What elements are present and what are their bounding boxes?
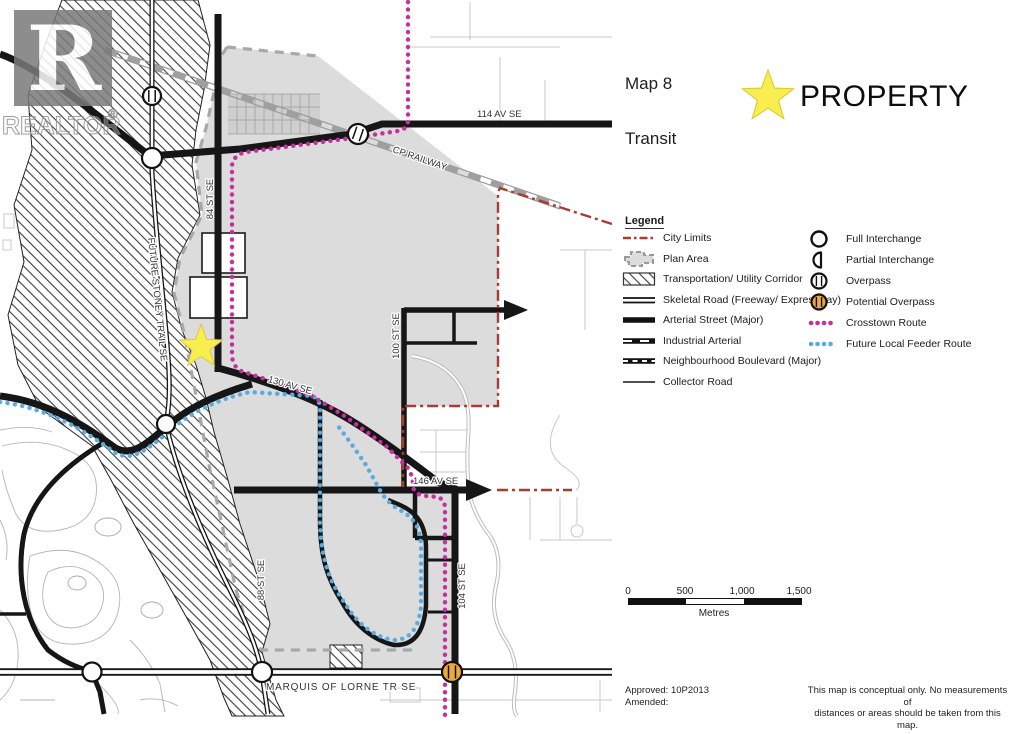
arterial-swatch (622, 313, 656, 327)
legend-item-full-interchange: Full Interchange (808, 228, 972, 249)
full-interchange-swatch (808, 229, 830, 249)
disclaimer-block: This map is conceptual only. No measurem… (805, 685, 1010, 731)
label-114-av-se: 114 AV SE (477, 109, 522, 120)
property-star-icon (740, 68, 796, 126)
realtor-watermark: R REALTOR ® (2, 6, 121, 140)
boulevard-swatch (622, 354, 656, 368)
full-interchange-icon (142, 148, 162, 168)
scale-unit: Metres (625, 608, 803, 619)
map-canvas: 114 AV SE CP RAILWAY 84 ST SE FUTURE STO… (0, 0, 612, 734)
skeletal-road-swatch (622, 293, 656, 307)
legend-right-column: Full Interchange Partial Interchange Ove… (808, 228, 972, 354)
disclaimer-line-1: This map is conceptual only. No measurem… (805, 685, 1010, 708)
overpass-swatch (808, 271, 830, 291)
disclaimer-line-2: distances or areas should be taken from … (805, 708, 1010, 731)
approval-block: Approved: 10P2013 Amended: (625, 685, 709, 708)
scale-tick-0: 0 (625, 586, 631, 597)
scale-tick-500: 500 (677, 586, 694, 597)
realtor-wordmark: REALTOR (2, 112, 121, 140)
feeder-route-swatch (808, 337, 838, 351)
plan-area-swatch (622, 250, 656, 268)
industrial-arterial-swatch (622, 334, 656, 348)
legend-item-crosstown-route: Crosstown Route (808, 312, 972, 333)
city-limits-swatch (622, 231, 656, 245)
page: 114 AV SE CP RAILWAY 84 ST SE FUTURE STO… (0, 0, 1024, 734)
potential-overpass-icon (442, 662, 462, 682)
legend-item-partial-interchange: Partial Interchange (808, 249, 972, 270)
full-interchange-icon (252, 662, 272, 682)
label-84-st-se: 84 ST SE (205, 179, 216, 220)
legend-item-overpass: Overpass (808, 270, 972, 291)
label-146-av-se: 146 AV SE (413, 476, 458, 487)
partial-interchange-swatch (808, 250, 830, 270)
scale-bar-graphic (628, 598, 802, 605)
label-104-st-se: 104 ST SE (457, 563, 468, 609)
collector-road-swatch (622, 375, 656, 389)
amended-line: Amended: (625, 697, 709, 709)
map-subtitle: Transit (625, 129, 676, 149)
overpass-icon (143, 87, 161, 105)
scale-tick-1500: 1,500 (786, 586, 811, 597)
label-88-st-se: 88 ST SE (256, 560, 267, 601)
scale-bar: 0 500 1,000 1,500 Metres (625, 586, 805, 619)
realtor-logo-r: R (27, 6, 103, 112)
property-label: PROPERTY (800, 80, 969, 114)
corridor-swatch (622, 271, 656, 287)
crosstown-route-swatch (808, 316, 838, 330)
label-100-st-se: 100 ST SE (391, 313, 402, 359)
legend-item-potential-overpass: Potential Overpass (808, 291, 972, 312)
full-interchange-icon (157, 415, 175, 433)
legend-item-feeder-route: Future Local Feeder Route (808, 333, 972, 354)
potential-overpass-swatch (808, 292, 830, 312)
map-number: Map 8 (625, 74, 672, 94)
registered-mark: ® (108, 106, 118, 121)
scale-tick-1000: 1,000 (729, 586, 754, 597)
label-marquis-of-lorne: MARQUIS OF LORNE TR SE (266, 682, 416, 693)
property-header: PROPERTY (740, 68, 969, 126)
scale-ticks: 0 500 1,000 1,500 (625, 586, 805, 598)
approved-line: Approved: 10P2013 (625, 685, 709, 697)
legend-title: Legend (625, 211, 664, 229)
full-interchange-icon (83, 663, 102, 682)
legend-item-neighbourhood-boulevard: Neighbourhood Boulevard (Major) (622, 351, 841, 372)
legend-item-collector-road: Collector Road (622, 372, 841, 393)
